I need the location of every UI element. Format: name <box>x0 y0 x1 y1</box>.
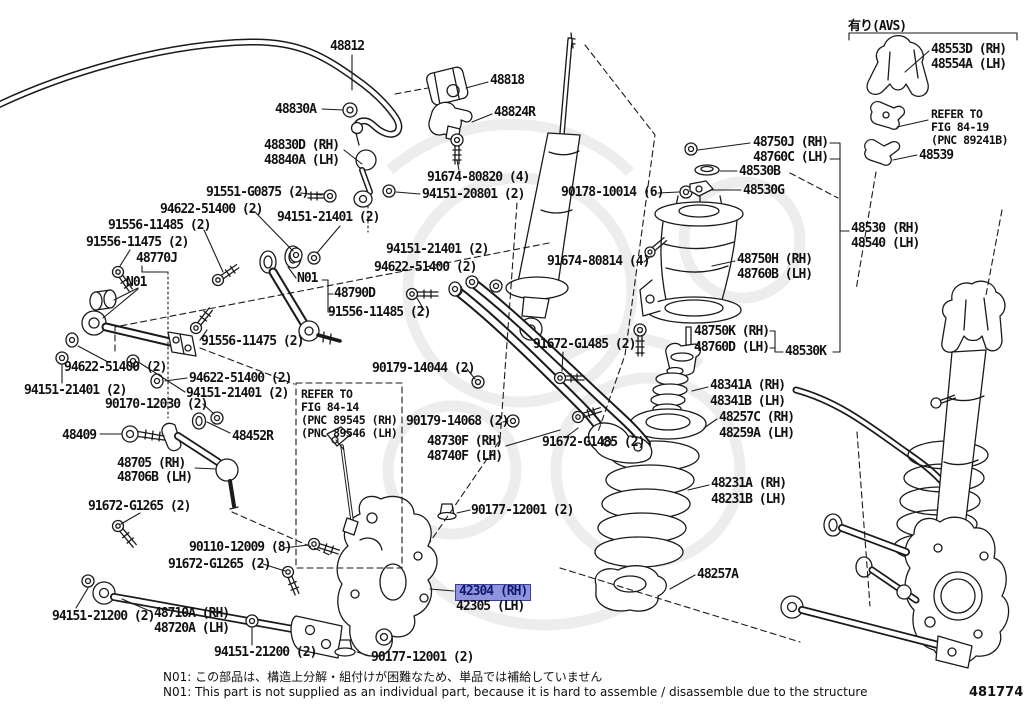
part-label-48553D[interactable]: 48553D (RH) <box>931 43 1006 57</box>
part-label-94151-21401-b[interactable]: 94151-21401 (2) <box>386 243 488 257</box>
part-label-48257A[interactable]: 48257A <box>697 568 738 582</box>
part-label-refer-84-19-3[interactable]: (PNC 89241B) <box>931 134 1008 146</box>
part-label-91551-G0875[interactable]: 91551-G0875 (2) <box>206 186 308 200</box>
stabilizer-bushing-drawing <box>425 66 469 106</box>
part-label-48530K[interactable]: 48530K <box>785 345 826 359</box>
part-label-48554A[interactable]: 48554A (LH) <box>931 58 1006 72</box>
part-label-48452R[interactable]: 48452R <box>232 430 273 444</box>
assembled-suspension-drawing <box>781 281 1009 668</box>
part-label-90178-10014[interactable]: 90178-10014 (6) <box>561 186 663 200</box>
part-label-91556-11485-a[interactable]: 91556-11485 (2) <box>108 219 210 233</box>
stabilizer-nut-48830A <box>343 103 357 117</box>
avs-parts-drawing <box>865 36 929 166</box>
part-label-48720A[interactable]: 48720A (LH) <box>154 622 229 636</box>
part-label-48231A[interactable]: 48231A (RH) <box>711 477 786 491</box>
part-label-refer-84-14-1[interactable]: REFER TO <box>301 388 352 400</box>
part-label-refer-84-14-4[interactable]: (PNC 89546 (LH) <box>301 427 397 439</box>
part-label-N01-b: N01 <box>297 272 317 286</box>
part-label-91672-G1265-b[interactable]: 91672-G1265 (2) <box>168 558 270 572</box>
part-label-48812[interactable]: 48812 <box>330 40 364 54</box>
part-label-N01-a: N01 <box>126 276 146 290</box>
part-label-48341B[interactable]: 48341B (LH) <box>710 395 785 409</box>
height-sensor-drawing <box>327 427 358 535</box>
part-label-48710A[interactable]: 48710A (RH) <box>154 607 229 621</box>
part-label-48530G[interactable]: 48530G <box>743 184 784 198</box>
part-label-90110-12009[interactable]: 90110-12009 (8) <box>189 541 291 555</box>
part-label-48540[interactable]: 48540 (LH) <box>851 237 919 251</box>
part-label-94151-21401-c[interactable]: 94151-21401 (2) <box>24 384 126 398</box>
stabilizer-bar-drawing <box>0 42 399 134</box>
part-label-48760B[interactable]: 48760B (LH) <box>737 268 812 282</box>
part-label-48790D[interactable]: 48790D <box>334 287 375 301</box>
part-label-48705[interactable]: 48705 (RH) <box>117 457 185 471</box>
part-label-90179-14044[interactable]: 90179-14044 (2) <box>372 362 474 376</box>
part-label-refer-84-14-2[interactable]: FIG 84-14 <box>301 401 359 413</box>
part-label-94151-21401-a[interactable]: 94151-21401 (2) <box>277 211 379 225</box>
part-label-48750J[interactable]: 48750J (RH) <box>753 136 828 150</box>
part-label-91674-80820[interactable]: 91674-80820 (4) <box>427 171 529 185</box>
part-label-90179-14068[interactable]: 90179-14068 (2) <box>406 415 508 429</box>
part-label-48539[interactable]: 48539 <box>919 149 953 163</box>
part-label-48760D[interactable]: 48760D (LH) <box>694 341 769 355</box>
part-label-48730F[interactable]: 48730F (RH) <box>427 435 502 449</box>
part-label-48840A[interactable]: 48840A (LH) <box>264 154 339 168</box>
part-label-91672-G1485-a[interactable]: 91672-G1485 (2) <box>533 338 635 352</box>
part-label-91674-80814[interactable]: 91674-80814 (4) <box>547 255 649 269</box>
part-label-91672-G1485-b[interactable]: 91672-G1485 (2) <box>542 436 644 450</box>
part-label-91556-11485-b[interactable]: 91556-11485 (2) <box>328 306 430 320</box>
part-label-48760C[interactable]: 48760C (LH) <box>753 151 828 165</box>
part-label-48706B[interactable]: 48706B (LH) <box>117 471 192 485</box>
part-label-48259A[interactable]: 48259A (LH) <box>719 427 794 441</box>
part-label-42305[interactable]: 42305 (LH) <box>456 600 524 614</box>
figure-code: 481774G <box>969 685 1024 700</box>
part-label-91556-11475-b[interactable]: 91556-11475 (2) <box>201 335 303 349</box>
part-label-91672-G1265-a[interactable]: 91672-G1265 (2) <box>88 500 190 514</box>
part-label-94151-21200-a[interactable]: 94151-21200 (2) <box>52 610 154 624</box>
note-en: N01: This part is not supplied as an ind… <box>163 685 867 699</box>
part-label-94622-51400-b[interactable]: 94622-51400 (2) <box>374 261 476 275</box>
part-label-refer-84-14-3[interactable]: (PNC 89545 (RH) <box>301 414 397 426</box>
part-label-48750K[interactable]: 48750K (RH) <box>694 325 769 339</box>
spring-seat-lower-drawing <box>595 566 666 611</box>
part-label-48830A[interactable]: 48830A <box>275 103 316 117</box>
part-label-48231B[interactable]: 48231B (LH) <box>711 493 786 507</box>
part-label-48770J[interactable]: 48770J <box>136 252 177 266</box>
part-label-48818[interactable]: 48818 <box>490 74 524 88</box>
part-label-90177-12001-a[interactable]: 90177-12001 (2) <box>471 504 573 518</box>
part-label-94622-51400-d[interactable]: 94622-51400 (2) <box>189 372 291 386</box>
part-label-avs-tag: 有り(AVS) <box>848 20 906 34</box>
part-label-94151-20801[interactable]: 94151-20801 (2) <box>422 188 524 202</box>
part-label-48830D[interactable]: 48830D (RH) <box>264 139 339 153</box>
note-jp: N01: この部品は、構造上分解・組付けが困難なため、単品では補給していません <box>163 668 602 685</box>
part-label-48750H[interactable]: 48750H (RH) <box>737 253 812 267</box>
part-label-refer-84-19-1[interactable]: REFER TO <box>931 108 982 120</box>
part-label-94151-21200-b[interactable]: 94151-21200 (2) <box>214 646 316 660</box>
part-label-48530B[interactable]: 48530B <box>739 165 780 179</box>
part-label-48257C[interactable]: 48257C (RH) <box>719 411 794 425</box>
part-label-48740F[interactable]: 48740F (LH) <box>427 450 502 464</box>
part-label-refer-84-19-2[interactable]: FIG 84-19 <box>931 121 989 133</box>
parts-diagram-page: 488124881848830A48824R48830D (RH)48840A … <box>0 0 1024 707</box>
part-label-90177-12001-b[interactable]: 90177-12001 (2) <box>371 651 473 665</box>
part-label-94622-51400-a[interactable]: 94622-51400 (2) <box>160 203 262 217</box>
part-label-90170-12030[interactable]: 90170-12030 (2) <box>105 398 207 412</box>
part-label-48409[interactable]: 48409 <box>62 429 96 443</box>
stabilizer-link-drawing <box>354 133 376 207</box>
part-label-48341A[interactable]: 48341A (RH) <box>710 379 785 393</box>
part-label-91556-11475-a[interactable]: 91556-11475 (2) <box>86 236 188 250</box>
upper-control-arm-left-drawing <box>82 290 196 356</box>
part-label-48824R[interactable]: 48824R <box>494 106 535 120</box>
part-label-94622-51400-c[interactable]: 94622-51400 (2) <box>64 361 166 375</box>
part-label-48530[interactable]: 48530 (RH) <box>851 222 919 236</box>
